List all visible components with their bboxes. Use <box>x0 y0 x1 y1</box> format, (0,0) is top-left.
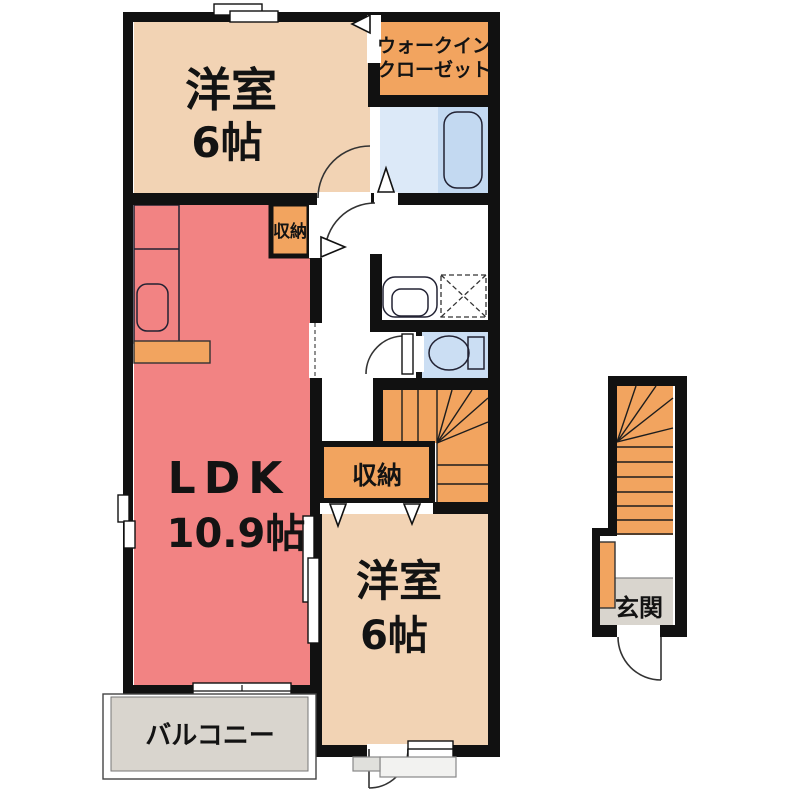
staircase-upper <box>383 390 488 443</box>
staircase-lower <box>437 443 488 502</box>
washbasin <box>383 277 437 317</box>
bedroom1-size-label: 6帖 <box>191 118 262 167</box>
entrance-wall-right <box>675 376 687 637</box>
bedroom2-size-label: 6帖 <box>360 613 428 659</box>
bedroom2-window <box>408 741 453 758</box>
floor-plan-canvas: 洋室 6帖 ウォークイン クローゼット 収納 LDK 10.9帖 収納 洋室 6… <box>0 0 800 800</box>
wall-washroom-bottom <box>380 320 500 332</box>
bedroom2-storage-label: 収納 <box>352 461 402 490</box>
toilet-door-leaf <box>402 334 413 374</box>
balcony-label: バルコニー <box>145 721 274 751</box>
wic-label-line1: ウォークイン <box>377 35 491 57</box>
wic-label-line2: クローゼット <box>377 58 491 81</box>
washroom-door-opening <box>369 203 383 254</box>
toilet-floor <box>422 332 488 378</box>
entrance-door-arc <box>618 637 661 680</box>
wall-stairs-left <box>373 388 383 443</box>
entrance-wall-left-lower <box>592 528 600 637</box>
ldk-size-label: 10.9帖 <box>167 511 306 557</box>
bedroom2-exit-opening <box>367 744 409 758</box>
entrance-stairs-floor <box>615 386 673 535</box>
shoe-cabinet <box>598 542 615 608</box>
ldk-floor <box>134 205 310 685</box>
toilet-door-arc <box>366 336 404 374</box>
washing-machine-pan <box>441 275 486 317</box>
wall-stairs-top <box>373 378 500 390</box>
bedroom2-label: 洋室 <box>356 557 442 607</box>
kitchen-counter-return <box>134 341 210 363</box>
bedroom1-label: 洋室 <box>185 63 277 117</box>
entrance-wall-left-upper <box>608 376 617 533</box>
entrance-label: 玄関 <box>615 594 663 622</box>
entrance-door-opening <box>617 625 660 637</box>
hall-storage-label: 収納 <box>273 221 307 242</box>
ldk-label: LDK <box>168 453 291 504</box>
toilet-door-opening <box>414 336 424 372</box>
wall-wic-bottom <box>368 95 500 107</box>
ldk-hall-opening <box>309 323 323 378</box>
hall-door-triangle <box>321 237 345 257</box>
wall-left <box>123 12 133 697</box>
wall-top <box>123 12 500 22</box>
floor-plan: 洋室 6帖 ウォークイン クローゼット 収納 LDK 10.9帖 収納 洋室 6… <box>0 0 800 800</box>
